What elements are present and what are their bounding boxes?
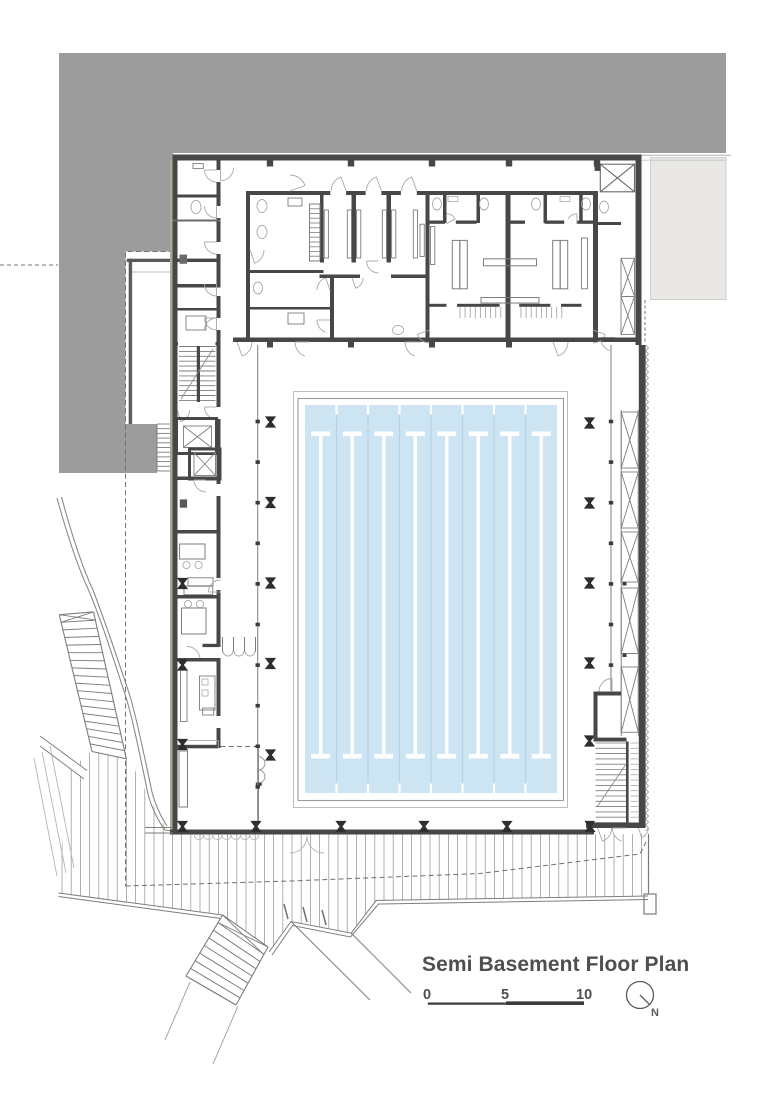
svg-text:Semi Basement Floor Plan: Semi Basement Floor Plan: [422, 953, 689, 976]
svg-text:10: 10: [576, 987, 592, 1003]
svg-text:5: 5: [501, 987, 509, 1003]
svg-text:0: 0: [423, 987, 431, 1003]
svg-text:N: N: [651, 1007, 659, 1019]
